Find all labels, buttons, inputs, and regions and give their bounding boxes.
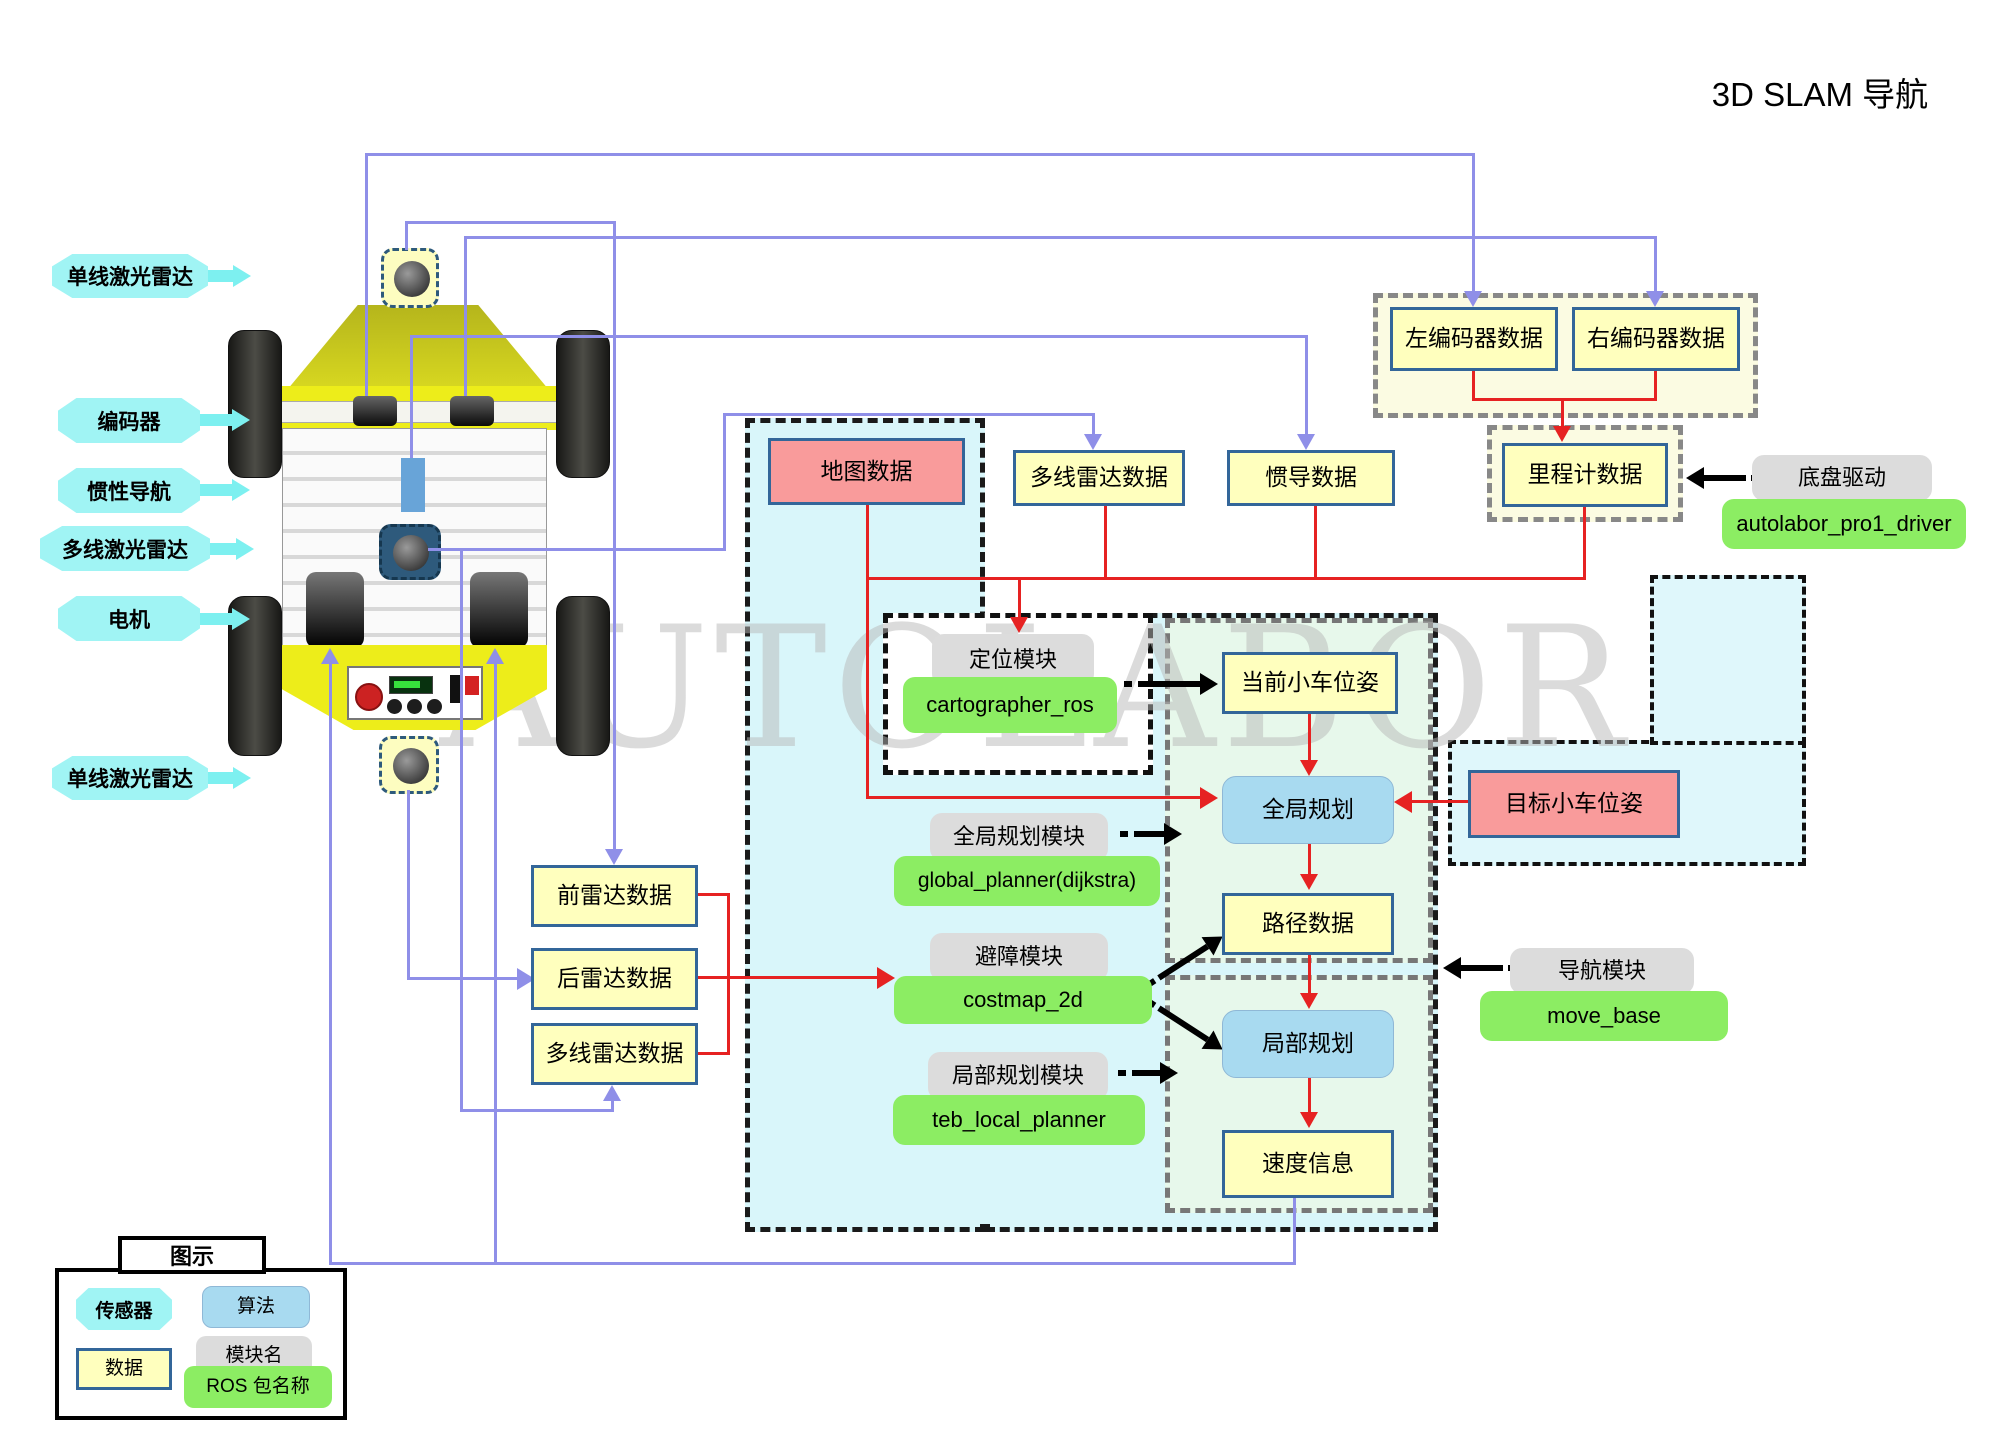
ptr-nav-bar xyxy=(1461,965,1503,971)
wire-right-encoder-h xyxy=(464,236,1657,239)
goal-pose-box: 目标小车位姿 xyxy=(1468,770,1680,838)
ptr-lp-dash xyxy=(1118,1070,1126,1076)
imu-data-box: 惯导数据 xyxy=(1227,450,1395,506)
current-pose-box: 当前小车位姿 xyxy=(1222,652,1398,714)
flow-path-v xyxy=(1308,844,1311,874)
knob-1 xyxy=(387,699,402,714)
cartographer-ros-label: cartographer_ros xyxy=(903,677,1117,733)
flow-loc-v xyxy=(1018,577,1021,617)
label-arrowhead-rear-lidar xyxy=(233,767,251,789)
power-connector xyxy=(355,683,383,711)
label-encoder: 编码器 xyxy=(58,398,200,443)
ptr-lp-arrow xyxy=(1160,1062,1178,1084)
wire-front-lidar-v1 xyxy=(405,221,408,250)
ptr-lp-bar xyxy=(1132,1070,1160,1076)
flow-local-arrow xyxy=(1300,993,1318,1009)
wire-left-encoder-v2 xyxy=(1472,153,1475,291)
costmap-2d-label: costmap_2d xyxy=(894,976,1152,1024)
wire-motor-left-arrow xyxy=(321,648,339,664)
wheel-front-right xyxy=(556,330,610,478)
wire-multilidar-h1 xyxy=(428,548,726,551)
wire-imu-v1 xyxy=(410,335,413,458)
wire-rear-lidar-h xyxy=(407,977,519,980)
ptr-drv-bar xyxy=(1704,475,1746,481)
wheel-front-left xyxy=(228,330,282,478)
wire-multilidar-v1 xyxy=(723,413,726,551)
label-arrowhead-imu xyxy=(232,479,250,501)
flow-radar-merge-v xyxy=(727,893,730,1055)
label-single-lidar-rear: 单线激光雷达 xyxy=(52,756,208,800)
move-base-label: move_base xyxy=(1480,991,1728,1041)
label-imu: 惯性导航 xyxy=(58,468,200,513)
wire-left-encoder-h xyxy=(365,153,1475,156)
flow-pose-arrow xyxy=(1300,760,1318,776)
rear-radar-data-box: 后雷达数据 xyxy=(531,948,698,1010)
label-arrowhead-motor xyxy=(232,608,250,630)
legend-title: 图示 xyxy=(118,1236,266,1274)
label-arrow-multi-lidar xyxy=(208,543,236,555)
flow-imudata-down xyxy=(1314,506,1317,577)
left-encoder-unit xyxy=(353,396,397,426)
ptr-loc-arrow xyxy=(1200,673,1218,695)
navigation-module-label: 导航模块 xyxy=(1510,948,1694,994)
knob-2 xyxy=(407,699,422,714)
diagram-canvas: AUTOLABOR 3D SLAM 导航 单线激光雷达 编码器 惯性导航 xyxy=(0,0,2000,1452)
flow-goal-arrow xyxy=(1394,791,1412,813)
flow-odom-v xyxy=(1561,398,1564,426)
left-motor xyxy=(306,572,364,648)
flow-map-h xyxy=(866,796,1200,799)
wire-velocity-v xyxy=(1293,1198,1296,1265)
ptr-gp-dash xyxy=(1120,831,1128,837)
flow-pose-v xyxy=(1308,714,1311,760)
page-title: 3D SLAM 导航 xyxy=(1670,68,1970,116)
flow-rightenc-v xyxy=(1654,371,1657,398)
knob-3 xyxy=(427,699,442,714)
flow-odom-down xyxy=(1583,507,1586,577)
left-encoder-data-box: 左编码器数据 xyxy=(1390,307,1558,371)
wire-rear-lidar-v xyxy=(407,790,410,980)
flow-multibottom-h xyxy=(698,1052,730,1055)
front-radar-data-box: 前雷达数据 xyxy=(531,865,698,927)
rear-lidar-mount xyxy=(379,736,439,794)
flow-rearradar-h xyxy=(698,976,730,979)
ptr-gp-bar xyxy=(1134,831,1164,837)
global-planner-pkg-label: global_planner(dijkstra) xyxy=(894,856,1160,906)
label-single-lidar-front: 单线激光雷达 xyxy=(52,254,208,298)
flow-path-arrow xyxy=(1300,874,1318,890)
flow-vel-arrow xyxy=(1300,1112,1318,1128)
label-arrow-encoder xyxy=(198,414,232,426)
flow-costmap-arrow xyxy=(877,967,895,989)
legend-ros-pkg: ROS 包名称 xyxy=(184,1366,332,1408)
wire-motor-right-arrow xyxy=(486,648,504,664)
label-arrowhead-front-lidar xyxy=(233,265,251,287)
wire-front-lidar-arrow xyxy=(605,849,623,865)
right-motor xyxy=(470,572,528,648)
right-encoder-data-box: 右编码器数据 xyxy=(1572,307,1740,371)
rear-lidar-sphere xyxy=(393,748,429,784)
flow-leftenc-v xyxy=(1472,371,1475,398)
wire-imu-arrow xyxy=(1297,434,1315,450)
teb-local-planner-label: teb_local_planner xyxy=(893,1095,1145,1145)
wire-imu-h xyxy=(410,335,1308,338)
chassis-driver-module-label: 底盘驱动 xyxy=(1752,455,1932,501)
ptr-gp-arrow xyxy=(1164,823,1182,845)
flow-bus-h xyxy=(866,577,1586,580)
wire-motor-left-v xyxy=(329,664,332,1264)
flow-multitop-down xyxy=(1104,506,1107,577)
wire-velocity-h xyxy=(329,1262,1296,1265)
wire-left-encoder-v1 xyxy=(365,153,368,396)
multi-lidar-sphere xyxy=(393,535,429,571)
velocity-data-box: 速度信息 xyxy=(1222,1130,1394,1198)
robot-front-axle xyxy=(250,401,580,423)
flow-enc-h xyxy=(1472,398,1657,401)
local-planning-box: 局部规划 xyxy=(1222,1010,1394,1078)
wire-right-encoder-arrow xyxy=(1646,291,1664,307)
wire-multilidar-branch-v xyxy=(460,549,463,1112)
multi-radar-top-box: 多线雷达数据 xyxy=(1013,450,1185,506)
flow-goal-h xyxy=(1412,800,1468,803)
wire-front-lidar-v2 xyxy=(613,221,616,849)
label-multi-lidar: 多线激光雷达 xyxy=(40,526,210,571)
legend-algorithm: 算法 xyxy=(202,1286,310,1328)
right-encoder-unit xyxy=(450,396,494,426)
wire-multilidar-branch-v2 xyxy=(611,1101,614,1112)
wire-front-lidar-h xyxy=(405,221,616,224)
global-planning-box: 全局规划 xyxy=(1222,776,1394,844)
estop-switch xyxy=(465,676,479,695)
ptr-drv-arrow xyxy=(1686,467,1704,489)
robot-hood xyxy=(287,305,549,390)
multi-radar-bottom-box: 多线雷达数据 xyxy=(531,1023,698,1085)
flow-frontradar-h xyxy=(698,893,730,896)
autolabor-driver-label: autolabor_pro1_driver xyxy=(1722,499,1966,549)
wire-right-encoder-v1 xyxy=(464,236,467,396)
odometry-data-box: 里程计数据 xyxy=(1502,443,1668,507)
ptr-loc-bar xyxy=(1138,681,1200,687)
battery-display xyxy=(389,676,433,694)
label-arrow-rear-lidar xyxy=(205,772,233,784)
label-motor: 电机 xyxy=(58,596,200,641)
flow-map-arrow xyxy=(1200,787,1218,809)
ptr-loc-dash xyxy=(1124,681,1132,687)
local-planner-module-label: 局部规划模块 xyxy=(928,1052,1108,1100)
imu-unit xyxy=(401,458,425,512)
wire-imu-v2 xyxy=(1305,335,1308,434)
global-planner-module-label: 全局规划模块 xyxy=(930,813,1108,861)
path-data-box: 路径数据 xyxy=(1222,893,1394,955)
wire-multilidar-v2 xyxy=(1092,413,1095,434)
flow-local-v xyxy=(1308,955,1311,993)
wire-multilidar-h2 xyxy=(723,413,1095,416)
battery-bar xyxy=(394,681,420,688)
wire-motor-right-v xyxy=(494,664,497,1264)
label-arrowhead-multi-lidar xyxy=(236,538,254,560)
flow-map-v xyxy=(866,505,869,799)
label-arrow-motor xyxy=(198,613,232,625)
wire-left-encoder-arrow xyxy=(1464,291,1482,307)
map-data-box: 地图数据 xyxy=(768,438,965,505)
wire-right-encoder-v2 xyxy=(1654,236,1657,291)
flow-odom-arrow xyxy=(1553,426,1571,442)
label-arrowhead-encoder xyxy=(232,409,250,431)
legend-data: 数据 xyxy=(76,1348,172,1390)
flow-loc-arrow xyxy=(1010,617,1028,633)
legend-sensor: 传感器 xyxy=(76,1288,172,1330)
obstacle-module-label: 避障模块 xyxy=(930,933,1108,981)
label-arrow-front-lidar xyxy=(205,270,233,282)
front-lidar-mount xyxy=(381,248,439,308)
wire-multilidar-arrow xyxy=(1084,434,1102,450)
wire-multilidar-branch-h xyxy=(460,1109,614,1112)
label-arrow-imu xyxy=(198,484,232,496)
flow-radar-main-h xyxy=(727,976,877,979)
wheel-rear-right xyxy=(556,596,610,756)
front-lidar-sphere xyxy=(394,261,430,297)
ptr-nav-arrow xyxy=(1443,957,1461,979)
multi-lidar-mount xyxy=(379,524,441,580)
flow-vel-v xyxy=(1308,1078,1311,1112)
wire-multilidar-branch-arrow xyxy=(603,1085,621,1101)
